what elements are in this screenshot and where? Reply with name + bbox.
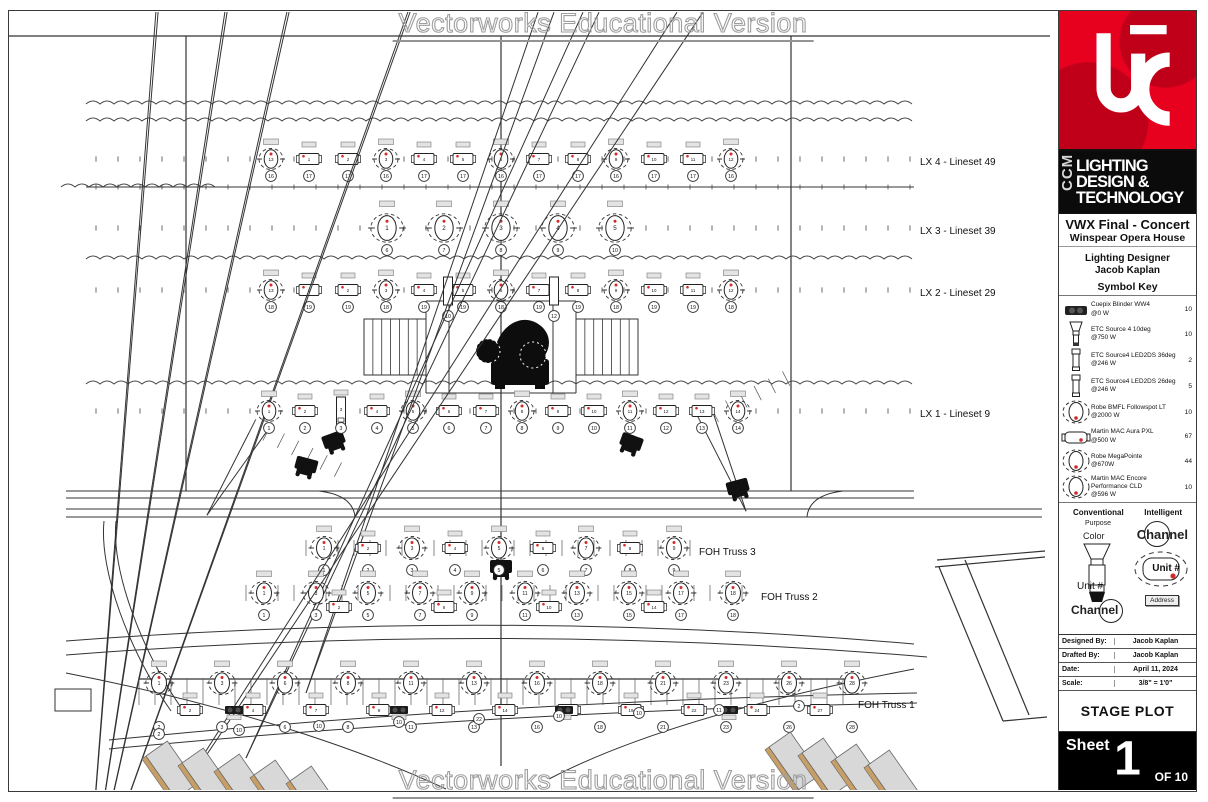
svg-text:7: 7 <box>585 546 588 552</box>
designer-name: Jacob Kaplan <box>1059 265 1196 277</box>
svg-text:18: 18 <box>597 725 603 731</box>
fixture-name: Robe BMFL Followspot LT@2000 W <box>1091 404 1180 421</box>
uc-logo <box>1059 11 1196 151</box>
svg-text:10: 10 <box>652 157 657 162</box>
svg-text:19: 19 <box>460 305 466 311</box>
info-label: Date: <box>1059 666 1115 673</box>
ccm-banner: CCM LIGHTING DESIGN & TECHNOLOGY <box>1059 151 1196 214</box>
svg-text:FOH Truss 1: FOH Truss 1 <box>858 700 915 711</box>
svg-text:2: 2 <box>798 704 801 710</box>
svg-text:1: 1 <box>263 613 266 619</box>
fixture-name: Robe MegaPointe@670W <box>1091 453 1180 470</box>
svg-text:15: 15 <box>626 613 632 619</box>
svg-text:11: 11 <box>691 157 696 162</box>
sheet-border: 1316 117 217 316 417 517 616 717 817 916… <box>8 10 1197 792</box>
svg-text:19: 19 <box>651 305 657 311</box>
svg-text:1: 1 <box>268 426 271 432</box>
svg-text:19: 19 <box>575 305 581 311</box>
svg-text:19: 19 <box>629 708 634 713</box>
svg-text:14: 14 <box>503 708 508 713</box>
vectorworks-watermark-bottom: Vectorworks Educational Version <box>393 765 814 799</box>
svg-text:18: 18 <box>597 681 603 687</box>
info-label: Designed By: <box>1059 638 1115 645</box>
svg-text:11: 11 <box>628 409 633 414</box>
symbol-key-row: ETC Source4 LED2DS 36deg@246 W 2 <box>1061 347 1194 373</box>
fixture-name: ETC Source4 LED2DS 36deg@246 W <box>1091 352 1180 369</box>
svg-text:1: 1 <box>323 546 326 552</box>
svg-text:2: 2 <box>158 732 161 738</box>
svg-text:10: 10 <box>547 605 552 610</box>
svg-text:12: 12 <box>440 708 445 713</box>
svg-text:23: 23 <box>723 725 729 731</box>
symbol-key-row: Martin MAC Aura PXL@500 W 67 <box>1061 425 1194 448</box>
designer-role: Lighting Designer <box>1059 253 1196 265</box>
svg-text:9: 9 <box>471 613 474 619</box>
svg-text:28: 28 <box>849 681 855 687</box>
svg-text:17: 17 <box>421 174 427 180</box>
svg-text:7: 7 <box>585 568 588 574</box>
svg-text:8: 8 <box>347 725 350 731</box>
ccm-label: CCM <box>1059 174 1076 191</box>
svg-text:3: 3 <box>499 225 503 232</box>
svg-text:17: 17 <box>678 613 684 619</box>
svg-text:13: 13 <box>471 725 477 731</box>
info-row: Drafted By: Jacob Kaplan <box>1059 649 1196 663</box>
cyl-fixture-icon <box>1061 347 1091 373</box>
svg-text:8: 8 <box>521 426 524 432</box>
svg-text:19: 19 <box>345 305 351 311</box>
fixture-count: 10 <box>1180 484 1194 491</box>
svg-text:10: 10 <box>612 248 618 254</box>
svg-text:28: 28 <box>849 725 855 731</box>
svg-text:9: 9 <box>557 248 560 254</box>
svg-text:18: 18 <box>728 305 734 311</box>
svg-text:16: 16 <box>534 725 540 731</box>
mover-fixture-icon <box>1061 448 1091 474</box>
svg-text:17: 17 <box>536 174 542 180</box>
svg-text:3: 3 <box>411 546 414 552</box>
sheet-block: Sheet 1 OF 10 <box>1059 732 1196 790</box>
fixture-count: 44 <box>1180 458 1194 465</box>
leko-fixture-icon <box>1061 321 1091 347</box>
symbol-key-row: Robe MegaPointe@670W 44 <box>1061 448 1194 474</box>
svg-text:1: 1 <box>268 409 271 414</box>
legend-int-channel-circle <box>1144 521 1170 547</box>
svg-text:12: 12 <box>664 409 669 414</box>
svg-text:11: 11 <box>408 681 413 687</box>
legend-conventional-title: Conventional <box>1073 508 1124 517</box>
svg-text:10: 10 <box>396 720 402 726</box>
mover-fixture-icon <box>1061 474 1091 500</box>
info-value: Jacob Kaplan <box>1115 638 1196 645</box>
svg-text:5: 5 <box>367 591 370 597</box>
svg-text:10: 10 <box>591 426 597 432</box>
svg-text:16: 16 <box>534 681 540 687</box>
svg-text:5: 5 <box>498 546 501 552</box>
sheet-label: Sheet <box>1066 737 1110 755</box>
svg-text:6: 6 <box>448 426 451 432</box>
legend-color-label: Color <box>1083 531 1105 541</box>
legend-address-label: Address <box>1145 595 1179 606</box>
info-value: April 11, 2024 <box>1115 666 1196 673</box>
symbol-key-row: Martin MAC Encore Performance CLD@596 W … <box>1061 474 1194 500</box>
svg-text:21: 21 <box>660 681 666 687</box>
svg-text:12: 12 <box>728 157 734 162</box>
svg-text:7: 7 <box>443 248 446 254</box>
svg-text:11: 11 <box>522 613 527 619</box>
svg-text:5: 5 <box>613 225 617 232</box>
symbol-key-row: ETC Source4 LED2DS 26deg@246 W 5 <box>1061 373 1194 399</box>
svg-text:11: 11 <box>716 708 721 714</box>
svg-text:6: 6 <box>386 248 389 254</box>
svg-text:1: 1 <box>385 225 389 232</box>
svg-text:8: 8 <box>347 681 350 687</box>
svg-text:7: 7 <box>419 591 422 597</box>
svg-text:15: 15 <box>626 591 632 597</box>
svg-text:1: 1 <box>263 591 266 597</box>
svg-text:19: 19 <box>690 305 696 311</box>
svg-text:4: 4 <box>376 426 379 432</box>
svg-text:16: 16 <box>498 174 504 180</box>
svg-text:18: 18 <box>730 591 736 597</box>
legend-intelligent-title: Intelligent <box>1144 508 1182 517</box>
svg-text:1: 1 <box>158 681 161 687</box>
info-row: Scale: 3/8" = 1'0" <box>1059 677 1196 691</box>
svg-text:3: 3 <box>385 157 388 162</box>
svg-text:13: 13 <box>268 288 274 293</box>
symbol-key-row: Robe BMFL Followspot LT@2000 W 10 <box>1061 399 1194 425</box>
svg-text:LX 4 - Lineset 49: LX 4 - Lineset 49 <box>920 157 996 168</box>
stage-plot-canvas: 1316 117 217 316 417 517 616 717 817 916… <box>9 11 1058 790</box>
svg-text:9: 9 <box>471 591 474 597</box>
svg-text:14: 14 <box>735 426 741 432</box>
vectorworks-watermark-top: Vectorworks Educational Version <box>393 8 814 42</box>
svg-text:19: 19 <box>306 305 312 311</box>
fixture-count: 10 <box>1180 306 1194 313</box>
legend-purpose-label: Purpose <box>1085 520 1111 527</box>
stage-plot-sheet: { "watermark": "Vectorworks Educational … <box>0 0 1208 802</box>
svg-text:3: 3 <box>315 613 318 619</box>
symbol-key-title: Symbol Key <box>1059 278 1196 296</box>
svg-text:2: 2 <box>442 225 446 232</box>
svg-text:13: 13 <box>700 409 705 414</box>
fixture-count: 67 <box>1180 433 1194 440</box>
svg-text:12: 12 <box>551 314 557 320</box>
title-block: CCM LIGHTING DESIGN & TECHNOLOGY VWX Fin… <box>1058 11 1196 790</box>
svg-text:9: 9 <box>673 546 676 552</box>
svg-text:26: 26 <box>786 681 792 687</box>
uc-monogram-icon <box>1076 19 1180 141</box>
legend-int-unit-label: Unit # <box>1152 563 1180 574</box>
svg-text:18: 18 <box>613 305 619 311</box>
fixture-name: ETC Source 4 10deg@750 W <box>1091 326 1180 343</box>
svg-text:11: 11 <box>408 725 413 731</box>
svg-text:13: 13 <box>471 681 477 687</box>
svg-text:FOH Truss 2: FOH Truss 2 <box>761 592 818 603</box>
svg-text:10: 10 <box>636 711 642 717</box>
cyl-fixture-icon <box>1061 373 1091 399</box>
svg-text:9: 9 <box>615 288 618 293</box>
fixture-name: ETC Source4 LED2DS 26deg@246 W <box>1091 378 1180 395</box>
svg-text:21: 21 <box>660 725 666 731</box>
svg-text:10: 10 <box>236 728 242 734</box>
svg-text:11: 11 <box>522 591 527 597</box>
svg-text:23: 23 <box>723 681 729 687</box>
svg-text:5: 5 <box>498 568 501 574</box>
svg-text:6: 6 <box>284 725 287 731</box>
fixture-count: 10 <box>1180 409 1194 416</box>
info-label: Drafted By: <box>1059 652 1115 659</box>
svg-text:6: 6 <box>542 568 545 574</box>
svg-text:16: 16 <box>613 174 619 180</box>
svg-text:2: 2 <box>304 426 307 432</box>
svg-text:10: 10 <box>556 714 562 720</box>
svg-text:13: 13 <box>574 591 580 597</box>
svg-text:7: 7 <box>419 613 422 619</box>
symbol-key-row: ETC Source 4 10deg@750 W 10 <box>1061 321 1194 347</box>
svg-text:18: 18 <box>268 305 274 311</box>
info-value: Jacob Kaplan <box>1115 652 1196 659</box>
svg-text:14: 14 <box>735 409 741 414</box>
svg-text:26: 26 <box>786 725 792 731</box>
fixture-count: 2 <box>1180 357 1194 364</box>
fixture-count: 5 <box>1180 383 1194 390</box>
svg-text:22: 22 <box>692 708 697 713</box>
legend-unit-label: Unit # <box>1077 581 1103 592</box>
fixture-name: Martin MAC Encore Performance CLD@596 W <box>1091 475 1180 500</box>
svg-text:13: 13 <box>699 426 705 432</box>
svg-text:3: 3 <box>221 681 224 687</box>
info-label: Scale: <box>1059 680 1115 687</box>
svg-text:24: 24 <box>755 708 760 713</box>
show-title: VWX Final - Concert <box>1059 217 1196 232</box>
svg-text:LX 1 - Lineset 9: LX 1 - Lineset 9 <box>920 409 990 420</box>
svg-text:17: 17 <box>460 174 466 180</box>
info-row: Designed By: Jacob Kaplan <box>1059 635 1196 649</box>
svg-text:4: 4 <box>454 568 457 574</box>
sheet-of-label: OF 10 <box>1155 770 1188 784</box>
svg-text:6: 6 <box>284 681 287 687</box>
svg-text:13: 13 <box>574 613 580 619</box>
svg-text:5: 5 <box>412 409 415 414</box>
svg-text:17: 17 <box>651 174 657 180</box>
svg-text:3: 3 <box>340 426 343 432</box>
venue-name: Winspear Opera House <box>1059 232 1196 244</box>
svg-text:9: 9 <box>615 157 618 162</box>
info-value: 3/8" = 1'0" <box>1115 680 1196 687</box>
svg-text:14: 14 <box>652 605 657 610</box>
svg-text:18: 18 <box>383 305 389 311</box>
svg-text:11: 11 <box>627 426 632 432</box>
svg-text:17: 17 <box>678 591 684 597</box>
svg-text:10: 10 <box>592 409 597 414</box>
svg-text:16: 16 <box>728 174 734 180</box>
svg-text:9: 9 <box>557 426 560 432</box>
svg-text:13: 13 <box>268 157 274 162</box>
svg-text:8: 8 <box>500 248 503 254</box>
svg-text:5: 5 <box>367 613 370 619</box>
symbol-key-list: Cuepix Blinder WW4@0 W 10 ETC Source 4 1… <box>1059 296 1196 503</box>
fixture-name: Martin MAC Aura PXL@500 W <box>1091 428 1180 445</box>
svg-text:18: 18 <box>498 305 504 311</box>
svg-text:17: 17 <box>575 174 581 180</box>
svg-text:17: 17 <box>306 174 312 180</box>
svg-text:10: 10 <box>652 288 657 293</box>
info-row: Date: April 11, 2024 <box>1059 663 1196 677</box>
svg-text:27: 27 <box>818 708 823 713</box>
svg-text:12: 12 <box>728 288 734 293</box>
title-block-info: Designed By: Jacob KaplanDrafted By: Jac… <box>1059 635 1196 691</box>
wash-fixture-icon <box>1061 428 1091 446</box>
svg-text:17: 17 <box>690 174 696 180</box>
sheet-number: 1 <box>1114 731 1141 786</box>
svg-text:16: 16 <box>383 174 389 180</box>
svg-text:FOH Truss 3: FOH Truss 3 <box>699 547 756 558</box>
svg-text:LX 2 - Lineset 29: LX 2 - Lineset 29 <box>920 288 996 299</box>
mover-fixture-icon <box>1061 399 1091 425</box>
fixture-legend: Conventional Intelligent Purpose Color U… <box>1059 503 1196 635</box>
svg-text:19: 19 <box>421 305 427 311</box>
fixture-count: 10 <box>1180 331 1194 338</box>
blinder-fixture-icon <box>1061 301 1091 319</box>
svg-text:10: 10 <box>316 724 322 730</box>
svg-text:22: 22 <box>476 717 482 723</box>
svg-text:19: 19 <box>536 305 542 311</box>
symbol-key-row: Cuepix Blinder WW4@0 W 10 <box>1061 298 1194 321</box>
svg-text:18: 18 <box>730 613 736 619</box>
svg-text:8: 8 <box>521 409 524 414</box>
legend-channel-circle <box>1099 599 1123 623</box>
plot-title: STAGE PLOT <box>1059 691 1196 732</box>
svg-text:3: 3 <box>385 288 388 293</box>
svg-text:11: 11 <box>691 288 696 293</box>
svg-text:7: 7 <box>485 426 488 432</box>
svg-text:16: 16 <box>268 174 274 180</box>
svg-text:LX 3 - Lineset 39: LX 3 - Lineset 39 <box>920 226 996 237</box>
fixture-name: Cuepix Blinder WW4@0 W <box>1091 301 1180 318</box>
dept-name: LIGHTING DESIGN & TECHNOLOGY <box>1076 158 1191 205</box>
svg-text:12: 12 <box>663 426 669 432</box>
svg-text:3: 3 <box>221 725 224 731</box>
